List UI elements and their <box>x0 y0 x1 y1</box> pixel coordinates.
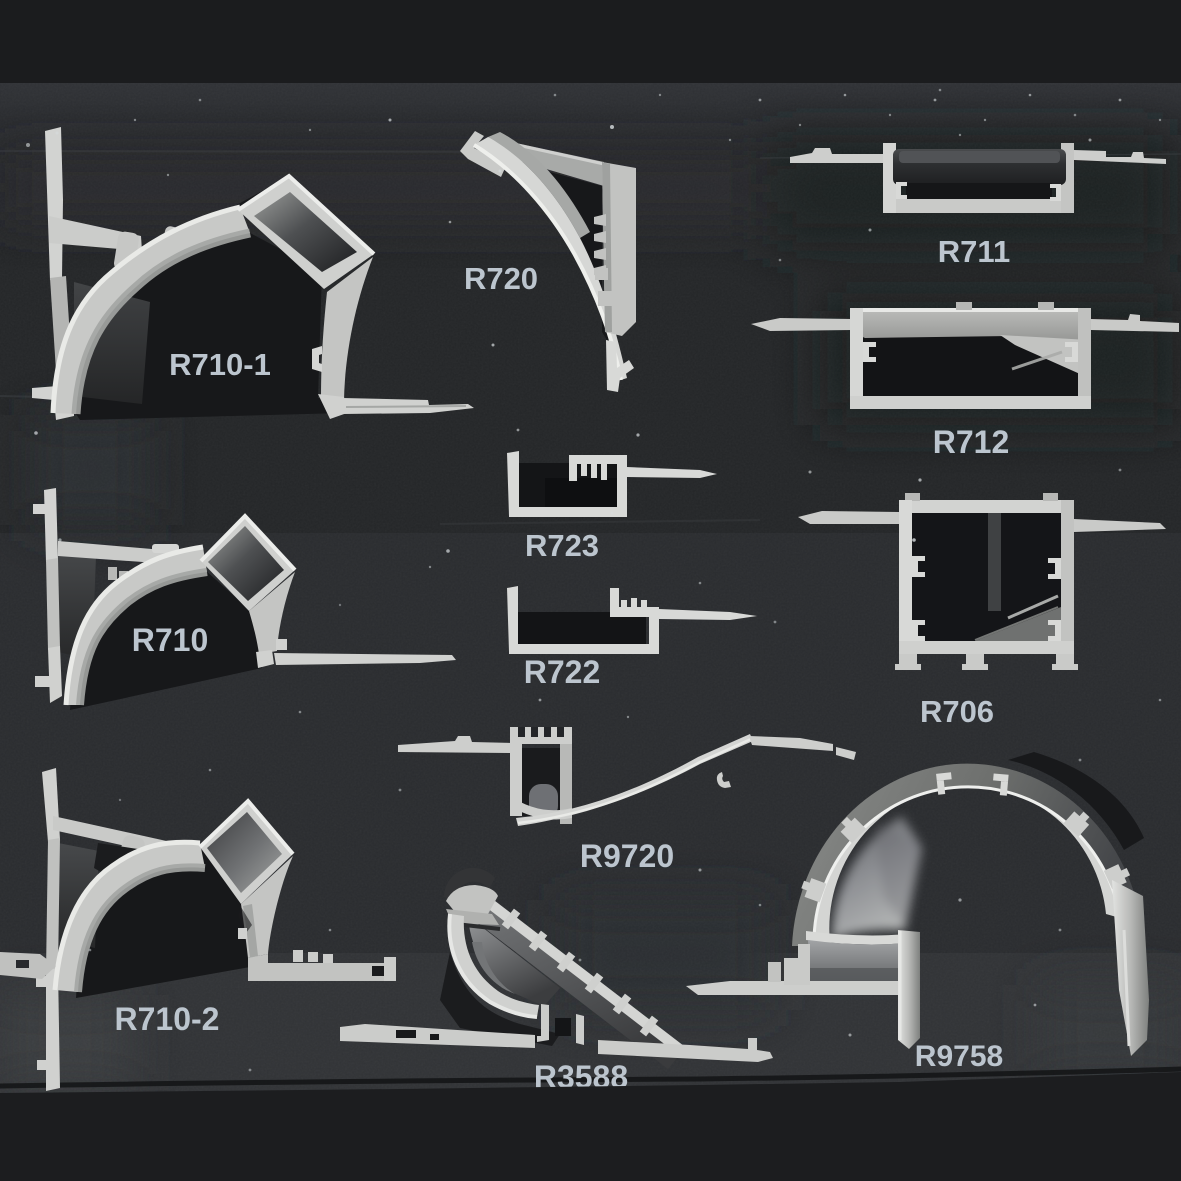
svg-text:R9758: R9758 <box>915 1040 1003 1073</box>
svg-text:R711: R711 <box>938 234 1010 269</box>
svg-text:R706: R706 <box>920 694 994 729</box>
svg-text:R9720: R9720 <box>580 838 674 874</box>
svg-text:R722: R722 <box>524 654 601 690</box>
svg-text:R723: R723 <box>525 528 599 563</box>
svg-text:R710: R710 <box>132 622 209 658</box>
svg-text:R710-2: R710-2 <box>115 1001 220 1037</box>
svg-text:R720: R720 <box>464 261 538 296</box>
svg-text:R712: R712 <box>933 424 1010 460</box>
svg-text:R710-1: R710-1 <box>169 347 271 382</box>
